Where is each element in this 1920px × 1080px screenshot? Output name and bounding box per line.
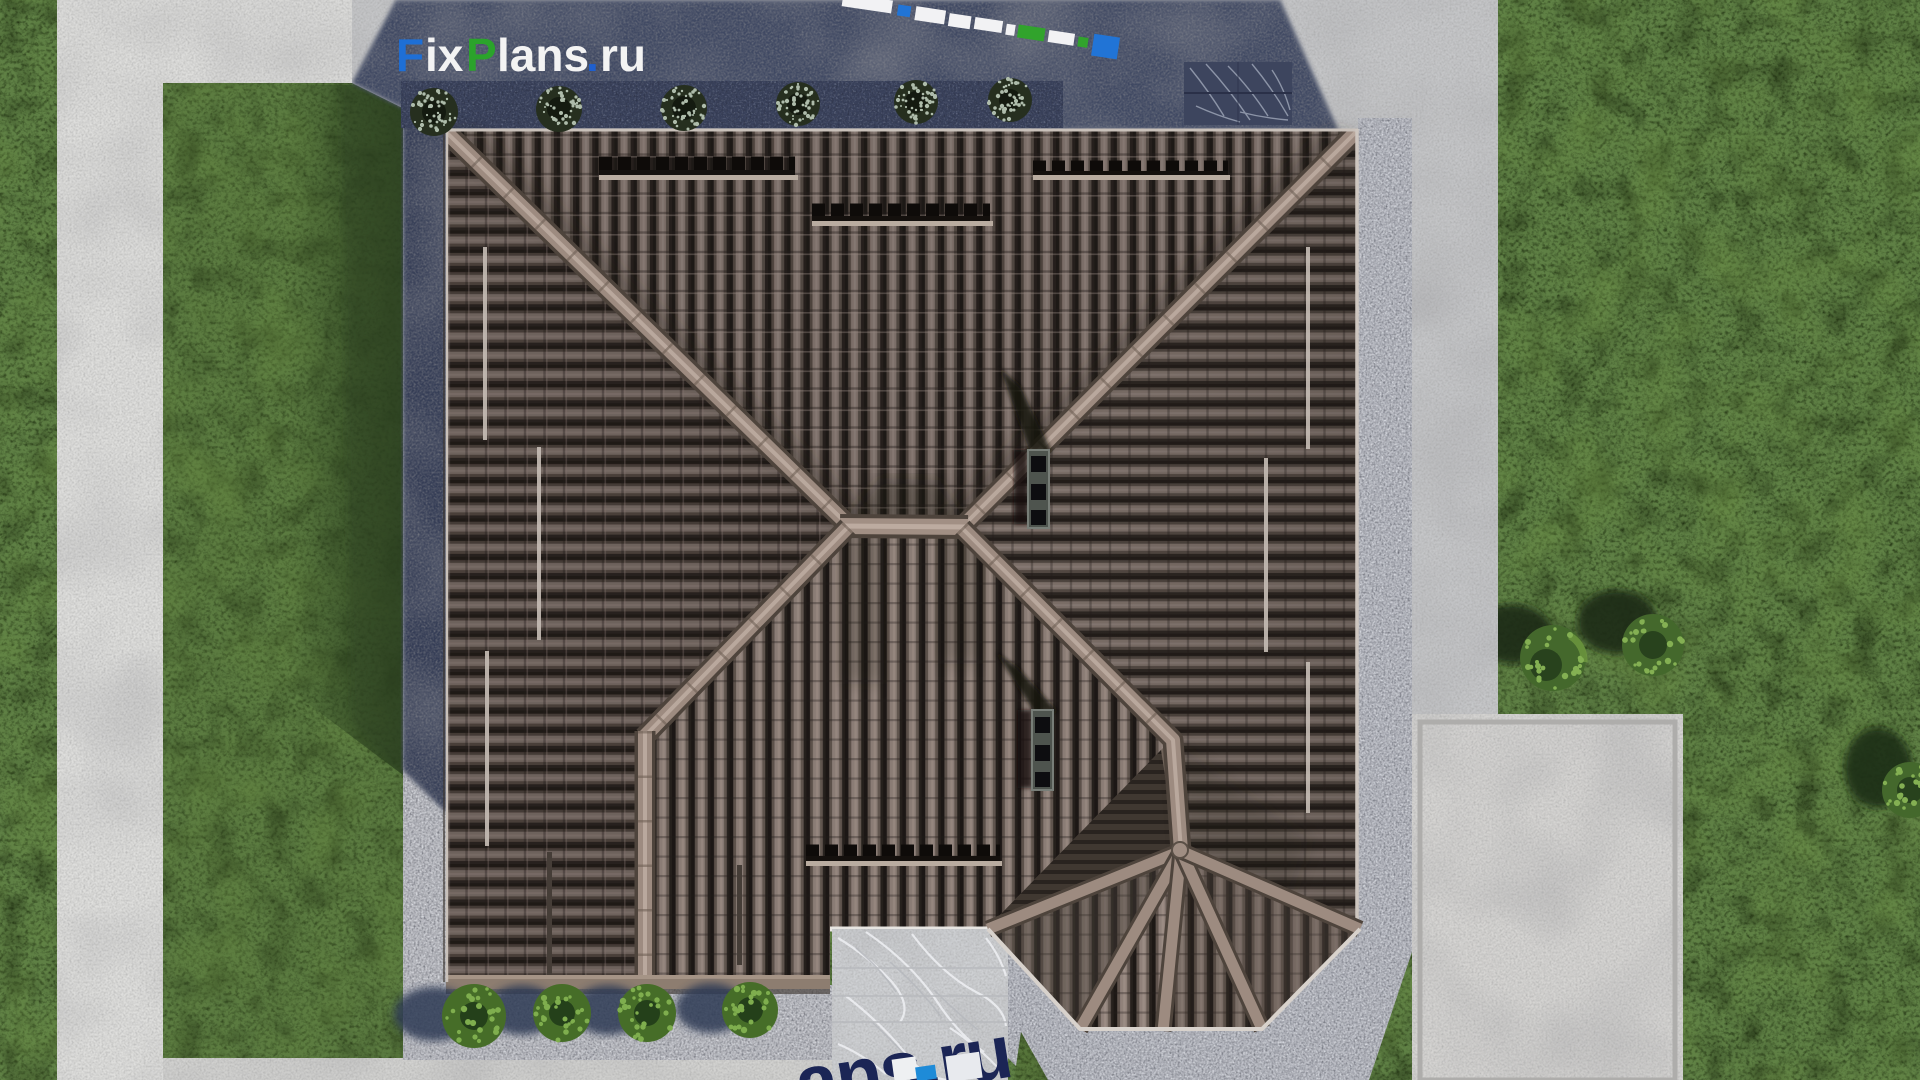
svg-text:P: P (466, 29, 497, 81)
svg-text:.: . (586, 29, 599, 81)
svg-text:F: F (396, 29, 424, 81)
svg-text:ru: ru (600, 29, 646, 81)
svg-text:ix: ix (425, 29, 464, 81)
svg-text:lans: lans (497, 29, 589, 81)
